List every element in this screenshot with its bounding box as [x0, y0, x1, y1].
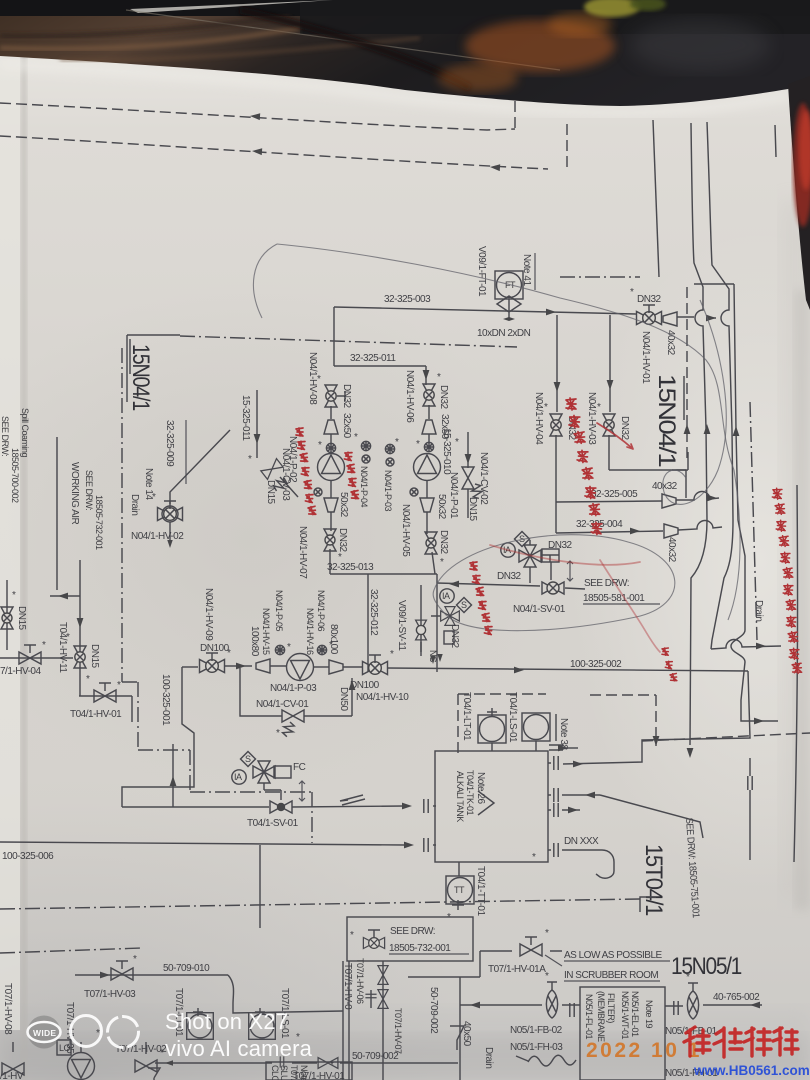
svg-text:Shot on X27: Shot on X27 — [165, 1009, 288, 1034]
svg-text:ALKALI TANK: ALKALI TANK — [455, 771, 465, 822]
svg-text:15T04/1: 15T04/1 — [640, 844, 667, 916]
svg-text:T04/1-HV-01: T04/1-HV-01 — [70, 709, 122, 720]
svg-text:WORKING AIR: WORKING AIR — [69, 462, 80, 525]
svg-text:N04/1-HV-07: N04/1-HV-07 — [297, 526, 308, 579]
svg-text:T04/1-LT-01: T04/1-LT-01 — [461, 692, 472, 741]
svg-text:T07/1-HV-06: T07/1-HV-06 — [355, 958, 365, 1004]
svg-text:*: * — [545, 971, 549, 982]
svg-text:SEE DRW:: SEE DRW: — [0, 416, 10, 456]
svg-text:T07/1-HV-01A: T07/1-HV-01A — [488, 964, 546, 975]
svg-text:N05/1-FB-02: N05/1-FB-02 — [510, 1025, 563, 1036]
svg-text:N04/1-HV-15: N04/1-HV-15 — [261, 608, 271, 655]
svg-text:40-765-002: 40-765-002 — [713, 992, 760, 1003]
svg-text:DN15: DN15 — [16, 606, 27, 631]
svg-text:*: * — [133, 954, 137, 965]
svg-text:N04/1-HV-09: N04/1-HV-09 — [203, 588, 214, 641]
svg-text:DN50: DN50 — [338, 687, 349, 712]
svg-text:V09/1-FT-01: V09/1-FT-01 — [476, 246, 487, 297]
svg-text:50x32: 50x32 — [436, 494, 447, 520]
svg-text:Drain: Drain — [483, 1047, 494, 1068]
svg-text:*: * — [12, 590, 16, 601]
svg-text:DN32: DN32 — [341, 384, 352, 409]
svg-text:*: * — [545, 928, 549, 939]
svg-text:TT: TT — [454, 885, 465, 895]
svg-text:100-325-006: 100-325-006 — [2, 851, 54, 862]
svg-text:40x50: 40x50 — [461, 1021, 472, 1047]
svg-text:*: * — [597, 402, 601, 413]
svg-text:*: * — [276, 728, 280, 739]
svg-text:Spill Coaming: Spill Coaming — [20, 408, 30, 458]
svg-text:T07/: T07/ — [289, 1065, 299, 1080]
svg-text:*: * — [416, 439, 420, 450]
svg-text:*: * — [318, 440, 322, 451]
svg-text:FILTER): FILTER) — [606, 993, 616, 1023]
svg-text:DN32: DN32 — [438, 385, 449, 410]
svg-text:T04/1-TT-01: T04/1-TT-01 — [475, 866, 486, 916]
svg-text:N05/1-WT-01: N05/1-WT-01 — [620, 991, 630, 1040]
svg-text:Note: Note — [299, 1065, 309, 1080]
svg-text:N04/1-HV-10: N04/1-HV-10 — [356, 692, 409, 703]
svg-text:32x50: 32x50 — [341, 413, 352, 439]
svg-text:DN15: DN15 — [89, 644, 100, 669]
svg-text:15N04/1: 15N04/1 — [127, 344, 154, 411]
svg-text:*: * — [248, 454, 252, 465]
svg-text:N05/1-FH-03: N05/1-FH-03 — [510, 1042, 563, 1053]
svg-text:N04/1-P-04: N04/1-P-04 — [359, 466, 369, 508]
svg-text:T04/1-LS-01: T04/1-LS-01 — [507, 692, 518, 743]
svg-text:LO: LO — [59, 1043, 71, 1053]
svg-text:DN32: DN32 — [438, 530, 449, 555]
svg-text:100-325-001: 100-325-001 — [160, 674, 171, 726]
svg-text:*: * — [630, 287, 634, 298]
svg-text:T07/1-HV-0: T07/1-HV-0 — [342, 963, 353, 1010]
svg-text:DN XXX: DN XXX — [564, 836, 599, 847]
svg-text:FC: FC — [293, 762, 306, 773]
svg-text:*: * — [160, 1048, 164, 1059]
svg-text:Note 19: Note 19 — [644, 1000, 654, 1029]
svg-text:40x32: 40x32 — [652, 481, 678, 492]
svg-text:Note 26: Note 26 — [475, 772, 486, 804]
svg-text:DN15: DN15 — [265, 480, 276, 505]
svg-text:10xDN 2xDN: 10xDN 2xDN — [477, 328, 531, 339]
svg-text:40x32: 40x32 — [666, 537, 677, 563]
svg-text:Note 41: Note 41 — [521, 254, 532, 286]
svg-text:www.HB0561.com: www.HB0561.com — [693, 1063, 810, 1078]
svg-text:DN15: DN15 — [467, 497, 478, 522]
svg-text:*: * — [152, 492, 156, 503]
svg-text:32-325-009: 32-325-009 — [164, 420, 175, 467]
svg-text:18505-732-001: 18505-732-001 — [389, 943, 451, 954]
svg-text:N04/1-HV-05: N04/1-HV-05 — [400, 504, 411, 557]
svg-text:CLOS: CLOS — [270, 1065, 280, 1080]
svg-text:T07/1-HV-07: T07/1-HV-07 — [393, 1008, 403, 1054]
svg-text:T04/1-SV-01: T04/1-SV-01 — [247, 818, 299, 829]
svg-text:SEE DRW:: SEE DRW: — [584, 578, 629, 589]
svg-text:Drain: Drain — [129, 494, 140, 515]
svg-text:N04/1-P-06: N04/1-P-06 — [316, 590, 326, 632]
svg-text:N04/1-CV-01: N04/1-CV-01 — [256, 699, 309, 710]
svg-text:vivo AI camera: vivo AI camera — [165, 1036, 313, 1061]
svg-text:N04/1-P-01: N04/1-P-01 — [448, 472, 459, 519]
svg-text:*: * — [42, 640, 46, 651]
svg-text:*: * — [287, 642, 291, 653]
svg-text:15-325-011: 15-325-011 — [240, 395, 251, 441]
svg-text:SEE DRW:: SEE DRW: — [390, 926, 435, 937]
svg-text:DN32: DN32 — [449, 624, 460, 649]
svg-text:N04/1-HV-03: N04/1-HV-03 — [586, 392, 597, 445]
svg-text:*: * — [544, 402, 548, 413]
svg-text:80x100: 80x100 — [328, 624, 339, 655]
svg-text:*: * — [440, 557, 444, 568]
svg-text:*: * — [317, 374, 321, 385]
svg-text:32-325-012: 32-325-012 — [368, 589, 379, 636]
svg-text:32-325-011: 32-325-011 — [350, 353, 396, 364]
svg-text:N05/1-EL-01: N05/1-EL-01 — [630, 991, 640, 1037]
svg-text:N04/1-HV-16: N04/1-HV-16 — [305, 608, 315, 655]
svg-text:N04/1-HV-04: N04/1-HV-04 — [533, 392, 544, 445]
svg-text:N05/1-FL-01: N05/1-FL-01 — [584, 994, 594, 1040]
svg-text:DN32: DN32 — [337, 528, 348, 553]
svg-text:AS LOW AS POSSIBLE: AS LOW AS POSSIBLE — [564, 950, 663, 961]
svg-text:T07/1-HV-03: T07/1-HV-03 — [84, 989, 136, 1000]
svg-text:50x32: 50x32 — [338, 492, 349, 518]
svg-text:*: * — [354, 432, 358, 443]
svg-text:N04/1-CV-03: N04/1-CV-03 — [280, 448, 291, 501]
svg-text:15N04/1: 15N04/1 — [653, 374, 680, 467]
svg-text:T04/1-TK-01: T04/1-TK-01 — [465, 770, 475, 816]
svg-text:15N05/1: 15N05/1 — [671, 953, 742, 980]
svg-text:32-325-003: 32-325-003 — [384, 294, 431, 305]
svg-text:*: * — [437, 372, 441, 383]
svg-text:N04/1-SV-01: N04/1-SV-01 — [513, 604, 566, 615]
svg-text:N04/1-P-03: N04/1-P-03 — [383, 470, 393, 512]
svg-text:*: * — [86, 674, 90, 685]
svg-text:N04/1-P-03: N04/1-P-03 — [270, 683, 317, 694]
svg-text:WIDE: WIDE — [33, 1028, 56, 1038]
svg-text:100x80: 100x80 — [249, 626, 260, 657]
svg-text:(MEMBRANE: (MEMBRANE — [596, 991, 606, 1042]
svg-text:*: * — [66, 632, 70, 643]
svg-text:DN100: DN100 — [200, 643, 230, 654]
svg-text:IN SCRUBBER ROOM: IN SCRUBBER ROOM — [564, 970, 658, 981]
svg-text:*: * — [227, 648, 231, 659]
svg-text:N04/1-HV-02: N04/1-HV-02 — [131, 531, 184, 542]
svg-text:100-325-002: 100-325-002 — [570, 659, 622, 670]
svg-text:*: * — [395, 437, 399, 448]
svg-text:*: * — [117, 680, 121, 691]
svg-text:DN32: DN32 — [637, 294, 662, 305]
svg-text:DN32: DN32 — [548, 540, 573, 551]
svg-text:*: * — [532, 852, 536, 863]
svg-text:Drain: Drain — [753, 600, 764, 621]
svg-text:40x32: 40x32 — [665, 330, 676, 356]
svg-text:18505-581-001: 18505-581-001 — [583, 593, 645, 604]
svg-text:/1-HV: /1-HV — [0, 1071, 24, 1080]
svg-text:*: * — [330, 1060, 334, 1071]
svg-text:18505-700-002: 18505-700-002 — [10, 448, 20, 503]
svg-text:7/1-HV-04: 7/1-HV-04 — [0, 666, 41, 677]
svg-text:SEE DRW:: SEE DRW: — [84, 470, 94, 510]
svg-text:50-709-002: 50-709-002 — [352, 1051, 399, 1062]
svg-text:N04/1-HV-06: N04/1-HV-06 — [404, 370, 415, 423]
svg-text:*: * — [686, 972, 690, 983]
svg-text:DN32: DN32 — [497, 571, 522, 582]
svg-text:*: * — [390, 649, 394, 660]
svg-text:*: * — [350, 930, 354, 941]
svg-text:T07/1-HV-08: T07/1-HV-08 — [2, 983, 13, 1035]
svg-text:50-709-010: 50-709-010 — [163, 963, 210, 974]
svg-text:15-325-010: 15-325-010 — [441, 428, 452, 475]
svg-text:N04/1-HV-01: N04/1-HV-01 — [640, 331, 651, 384]
svg-text:N04/1-CV-02: N04/1-CV-02 — [478, 452, 489, 505]
svg-text:DN32: DN32 — [619, 416, 630, 441]
svg-text:32-325-013: 32-325-013 — [327, 562, 374, 573]
svg-text:V09/1-SV-11: V09/1-SV-11 — [396, 600, 407, 651]
svg-text:N04/1-P-05: N04/1-P-05 — [274, 590, 284, 632]
svg-text:50-709-002: 50-709-002 — [428, 987, 439, 1034]
svg-text:18505-732-001: 18505-732-001 — [94, 495, 104, 550]
svg-text:T04/1-HV-11: T04/1-HV-11 — [57, 622, 68, 673]
svg-text:*: * — [455, 437, 459, 448]
svg-text:32-325-005: 32-325-005 — [591, 489, 638, 500]
